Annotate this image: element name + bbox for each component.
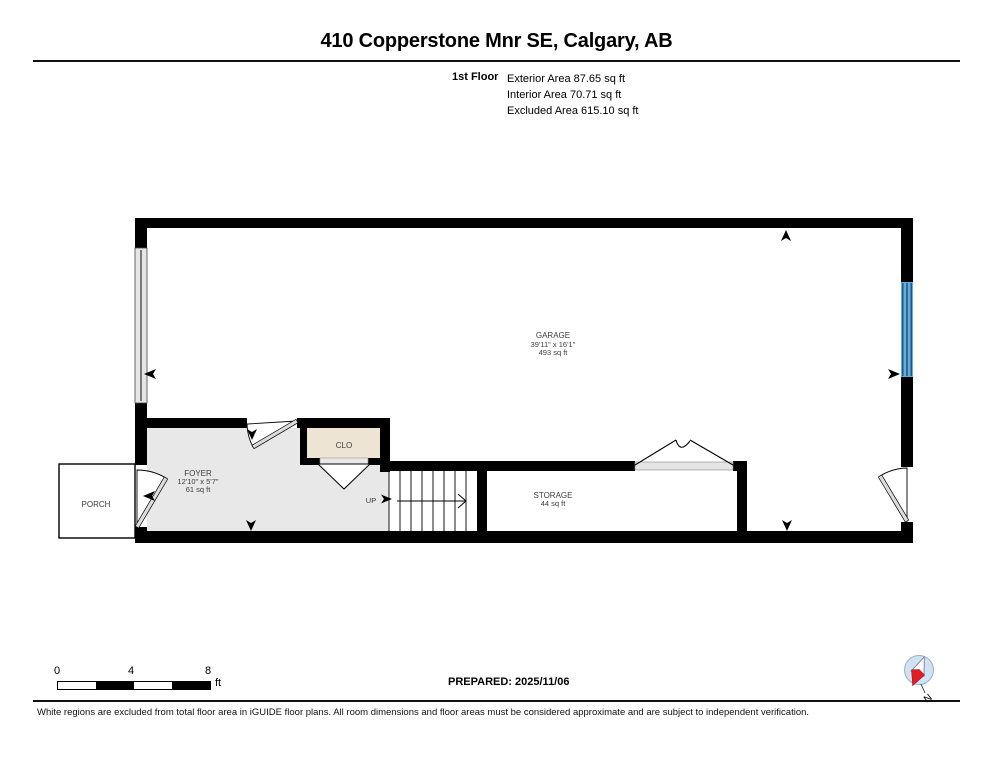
storage-double-door bbox=[635, 440, 733, 465]
wall-segment bbox=[135, 531, 913, 543]
garage-label: GARAGE bbox=[536, 331, 570, 340]
wall-segment bbox=[135, 403, 147, 465]
scale-segment bbox=[172, 682, 210, 689]
scale-tick-4: 4 bbox=[119, 665, 143, 677]
arrow-down-icon bbox=[782, 520, 792, 531]
scale-bar bbox=[57, 681, 211, 690]
compass-tick bbox=[921, 684, 925, 693]
arrow-up-icon bbox=[781, 230, 791, 241]
stairs-up-label: UP bbox=[366, 496, 376, 505]
scale-segment bbox=[96, 682, 134, 689]
wall-segment bbox=[135, 218, 913, 228]
wall-segment bbox=[135, 527, 147, 543]
scale-tick-8: 8 bbox=[196, 665, 220, 677]
scale-segment bbox=[58, 682, 96, 689]
wall-segment bbox=[147, 418, 247, 428]
wall-segment bbox=[737, 461, 747, 531]
wall-segment bbox=[135, 218, 147, 248]
footer-divider bbox=[33, 700, 960, 702]
wall-segment bbox=[477, 461, 487, 531]
scale-unit: ft bbox=[215, 677, 221, 689]
floor-plan: GARAGE 39'11" x 16'1" 493 sq ft FOYER 12… bbox=[0, 0, 993, 768]
wall-segment bbox=[901, 377, 913, 467]
compass-icon: N bbox=[905, 654, 935, 705]
foyer-area: 61 sq ft bbox=[186, 485, 212, 494]
storage-area: 44 sq ft bbox=[541, 499, 567, 508]
storage-door-sill bbox=[635, 462, 733, 470]
wall-segment bbox=[297, 418, 307, 428]
porch-label: PORCH bbox=[82, 500, 111, 509]
compass-north-label: N bbox=[922, 692, 934, 705]
garage-area: 493 sq ft bbox=[539, 348, 569, 357]
wall-segment bbox=[901, 218, 913, 282]
wall-segment bbox=[901, 522, 913, 543]
closet-label: CLO bbox=[336, 441, 352, 450]
wall-segment bbox=[380, 461, 635, 471]
prepared-date: PREPARED: 2025/11/06 bbox=[448, 676, 569, 688]
scale-segment bbox=[134, 682, 172, 689]
disclaimer-text: White regions are excluded from total fl… bbox=[37, 707, 957, 718]
scale-tick-0: 0 bbox=[45, 665, 69, 677]
arrow-right-icon bbox=[888, 369, 900, 379]
